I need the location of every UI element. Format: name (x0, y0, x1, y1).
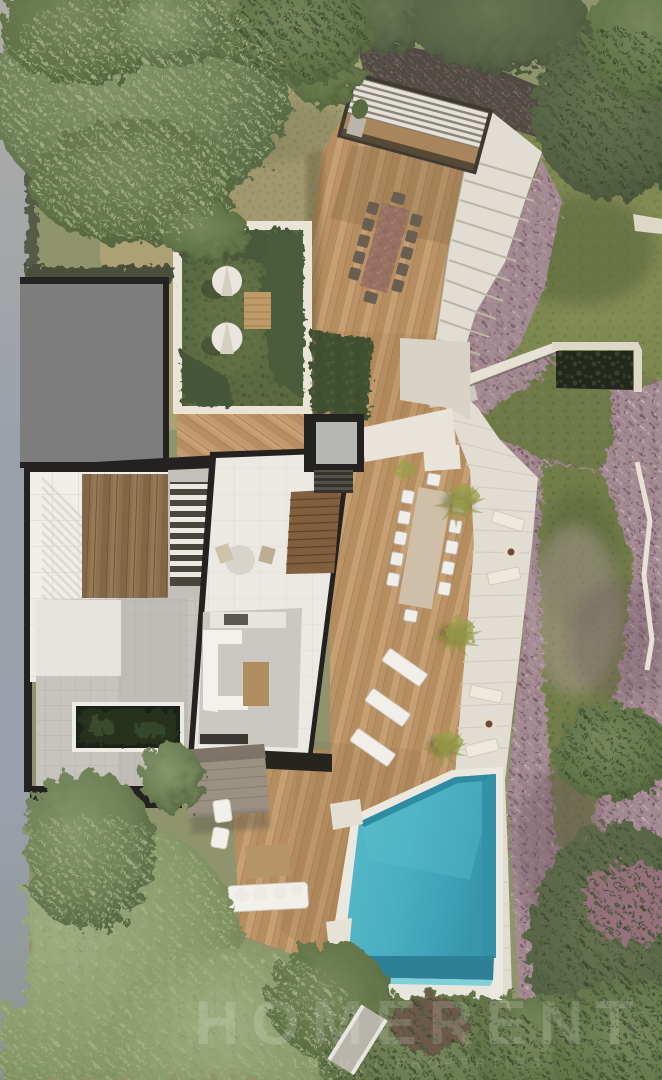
svg-text:HOMERENT: HOMERENT (195, 989, 646, 1058)
svg-text:LUXURY PROPERTIES: LUXURY PROPERTIES (294, 1055, 546, 1071)
